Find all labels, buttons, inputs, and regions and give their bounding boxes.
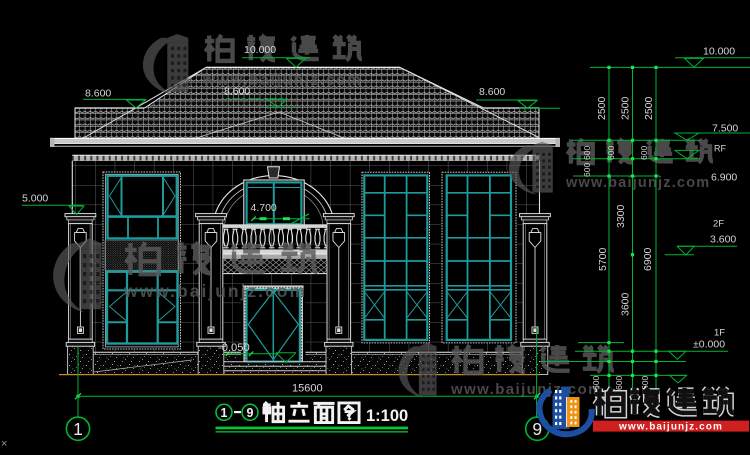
svg-text:2500: 2500: [643, 96, 655, 120]
svg-text:www.baijunjz.com: www.baijunjz.com: [450, 381, 603, 398]
svg-text:5.000: 5.000: [22, 193, 48, 205]
svg-text:3300: 3300: [615, 204, 627, 228]
svg-text:www.baijunjz.com: www.baijunjz.com: [618, 422, 723, 433]
svg-text:6900: 6900: [642, 247, 654, 271]
svg-text:8.600: 8.600: [224, 86, 250, 98]
svg-text:8.600: 8.600: [479, 86, 505, 98]
svg-text:RF: RF: [714, 144, 726, 154]
svg-text:5700: 5700: [597, 247, 609, 271]
svg-text:2500: 2500: [620, 96, 632, 120]
svg-text:8.600: 8.600: [85, 88, 111, 100]
svg-text:15600: 15600: [292, 383, 323, 395]
svg-text:-0.050: -0.050: [218, 342, 250, 354]
svg-text:3.600: 3.600: [710, 234, 736, 246]
svg-text:1: 1: [73, 419, 83, 439]
svg-text:6.900: 6.900: [711, 172, 737, 184]
svg-text:1F: 1F: [714, 328, 725, 339]
svg-text:3600: 3600: [620, 292, 632, 316]
svg-text:2500: 2500: [596, 96, 608, 120]
svg-text:10.000: 10.000: [244, 44, 276, 56]
svg-text:600: 600: [639, 146, 649, 160]
svg-text:2F: 2F: [713, 219, 724, 230]
svg-text:10.000: 10.000: [703, 46, 735, 58]
svg-text:4.700: 4.700: [251, 202, 277, 214]
svg-text:600: 600: [591, 376, 601, 390]
svg-text:600: 600: [582, 163, 592, 177]
svg-text:1: 1: [221, 406, 228, 420]
svg-text:600: 600: [614, 376, 624, 390]
svg-text:×: ×: [1, 438, 7, 450]
svg-text:www.baijunjz.com: www.baijunjz.com: [123, 281, 307, 301]
svg-text:±0.000: ±0.000: [693, 339, 725, 351]
svg-text:9: 9: [247, 406, 254, 420]
svg-text:600: 600: [582, 146, 592, 160]
svg-text:1:100: 1:100: [366, 407, 408, 425]
